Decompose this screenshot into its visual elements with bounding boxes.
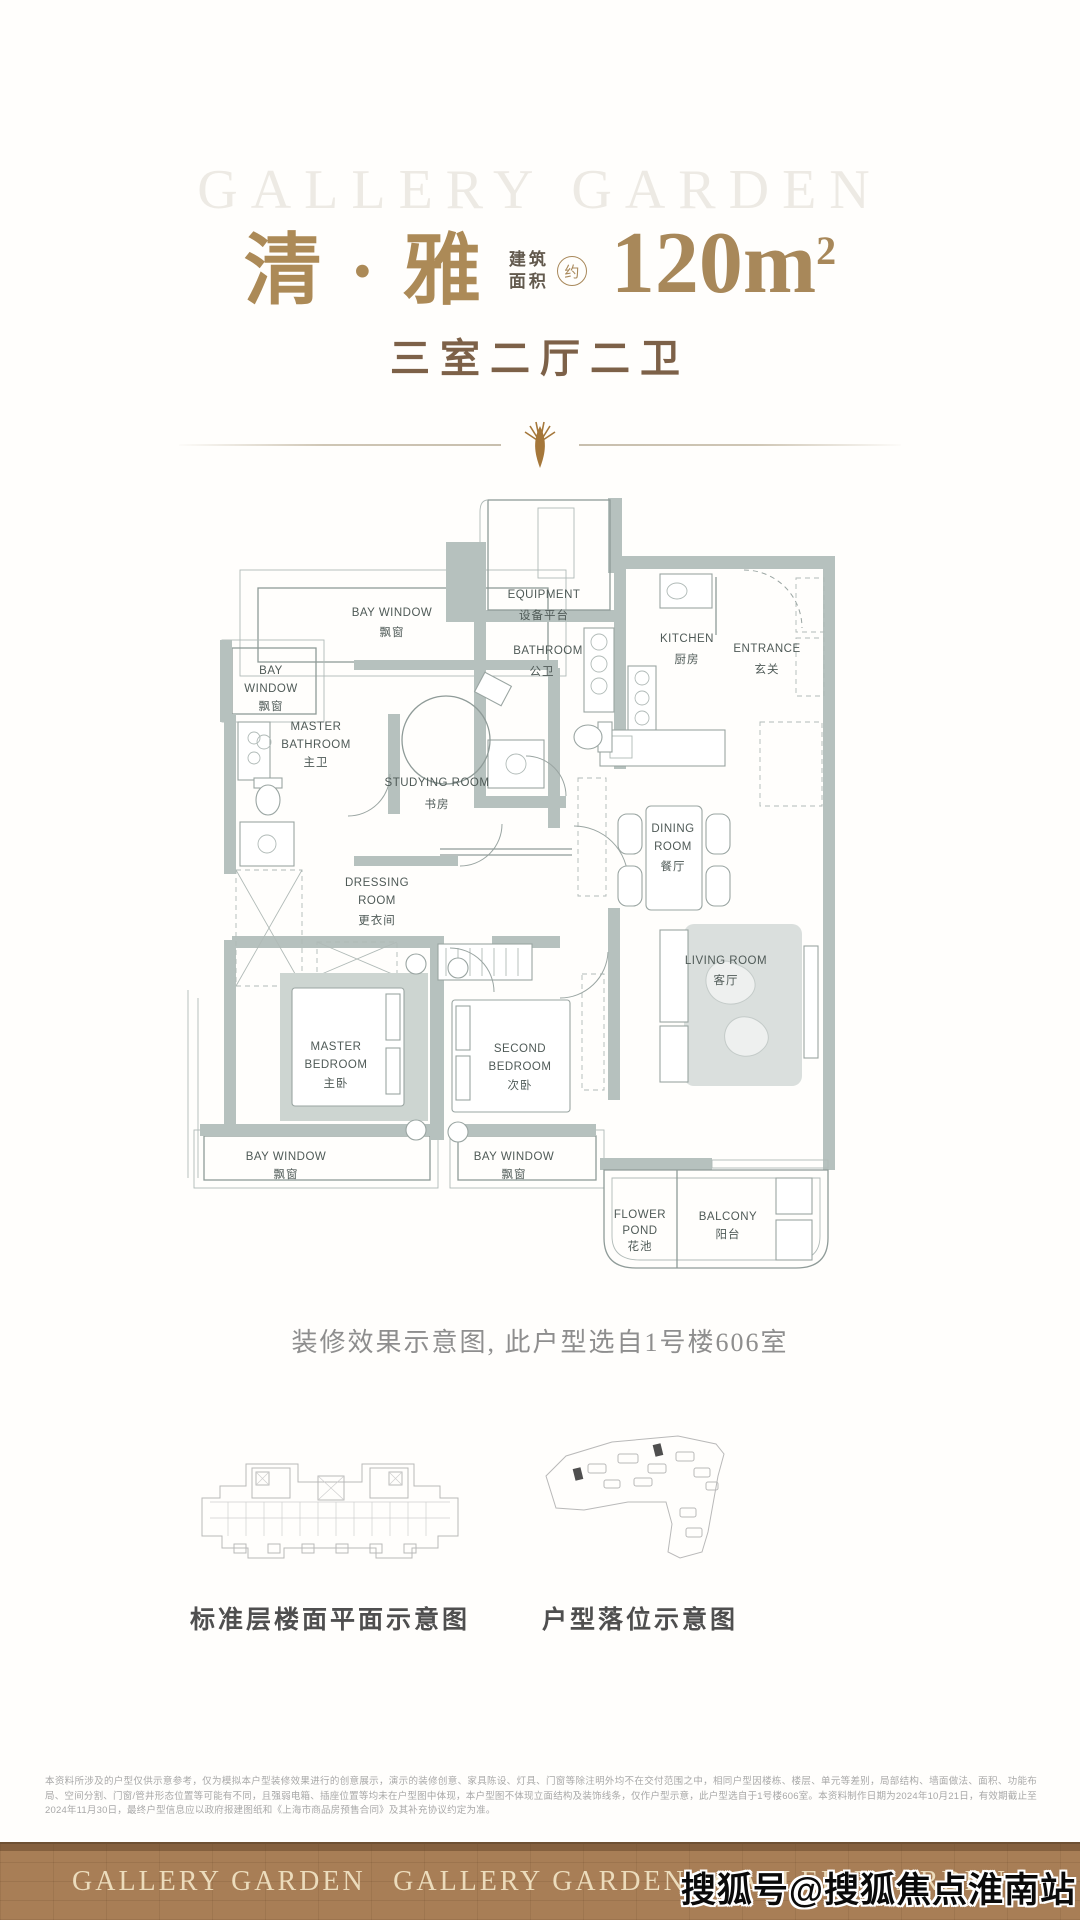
divider-line-left — [179, 444, 501, 446]
room-label: 餐厅 — [661, 859, 686, 873]
room-label: 次卧 — [508, 1078, 533, 1092]
floor-plan: BAY WINDOW 飘窗 EQUIPMENT 设备平台 BATHROOM 公卫… — [140, 478, 835, 1293]
room-label: MASTER — [291, 721, 342, 733]
entrance-details — [744, 570, 824, 806]
room-label: 公卫 — [530, 665, 555, 678]
room-label: SECOND — [494, 1043, 546, 1055]
room-label: MASTER — [311, 1041, 362, 1053]
standard-floor-caption: 标准层楼面平面示意图 — [170, 1600, 490, 1636]
room-label: 书房 — [425, 798, 450, 811]
room-label: WINDOW — [244, 683, 297, 695]
room-label: LIVING ROOM — [685, 955, 767, 967]
area-value: 120m2 — [611, 220, 836, 308]
area-number: 120m — [611, 215, 816, 312]
area-superscript: 2 — [816, 228, 836, 273]
room-label: BAY WINDOW — [474, 1151, 555, 1163]
room-label: BAY — [259, 665, 283, 677]
site-location-caption: 户型落位示意图 — [520, 1600, 760, 1636]
room-label: BAY WINDOW — [246, 1151, 327, 1163]
room-label: BALCONY — [699, 1211, 757, 1223]
layout-subtitle: 三室二厅二卫 — [0, 326, 1080, 384]
room-label: 主卧 — [324, 1077, 349, 1090]
standard-floor-diagram — [170, 1440, 490, 1590]
room-label: BATHROOM — [281, 739, 351, 751]
title-row: 清 · 雅 建筑 面积 约 120m2 — [0, 208, 1080, 320]
room-label: DINING — [651, 823, 694, 835]
room-label: FLOWER — [614, 1209, 666, 1221]
disclaimer-text: 本资料所涉及的户型仅供示意参考，仅为模拟本户型装修效果进行的创意展示，演示的装修… — [45, 1775, 1037, 1819]
room-label: 设备平台 — [519, 608, 569, 622]
room-label: BATHROOM — [513, 645, 583, 657]
plan-caption: 装修效果示意图, 此户型选自1号楼606室 — [0, 1322, 1080, 1359]
room-label: BEDROOM — [489, 1061, 552, 1073]
room-label: 主卫 — [304, 756, 329, 769]
room-label: 花池 — [628, 1240, 653, 1253]
room-label: 厨房 — [675, 653, 700, 666]
divider-line-right — [579, 444, 901, 446]
room-label: 飘窗 — [274, 1167, 299, 1181]
room-label: DRESSING — [345, 877, 409, 889]
studying-room-furniture — [402, 672, 572, 866]
room-label: 阳台 — [716, 1227, 741, 1241]
room-labels: BAY WINDOW 飘窗 EQUIPMENT 设备平台 BATHROOM 公卫… — [244, 589, 800, 1253]
page: GALLERY GARDEN 清 · 雅 建筑 面积 约 120m2 三室二厅二… — [0, 0, 1080, 1920]
room-label: 更衣间 — [358, 913, 396, 927]
room-label: POND — [622, 1225, 657, 1237]
approx-badge: 约 — [557, 256, 587, 286]
site-location-diagram — [530, 1412, 750, 1572]
room-label: 客厅 — [714, 973, 739, 987]
area-label-bottom: 面积 — [509, 271, 549, 293]
room-label: ROOM — [358, 895, 396, 907]
room-label: EQUIPMENT — [508, 589, 581, 601]
living-room-furniture — [660, 924, 818, 1086]
footer-brand-left: GALLERY GARDEN — [72, 1866, 366, 1898]
unit-title: 清 · 雅 — [244, 208, 485, 320]
room-label: BAY WINDOW — [352, 607, 433, 619]
footer-brand-center: GALLERY GARDEN — [393, 1866, 687, 1898]
room-label: STUDYING ROOM — [385, 777, 490, 789]
ornament-divider — [0, 420, 1080, 470]
room-label: 飘窗 — [502, 1167, 527, 1181]
gingko-ornament-icon — [519, 420, 561, 470]
dining-furniture — [618, 806, 730, 910]
area-label-block: 建筑 面积 约 — [509, 249, 587, 293]
room-label: 玄关 — [755, 662, 780, 676]
room-label: BEDROOM — [305, 1059, 368, 1071]
room-label: 飘窗 — [259, 699, 284, 713]
room-label: 飘窗 — [380, 625, 405, 639]
area-label: 建筑 面积 — [509, 249, 549, 293]
area-label-top: 建筑 — [509, 249, 549, 271]
sohu-watermark: 搜狐号@搜狐焦点淮南站 — [681, 1862, 1076, 1913]
room-label: KITCHEN — [660, 633, 714, 645]
room-label: ROOM — [654, 841, 692, 853]
room-label: ENTRANCE — [733, 643, 800, 655]
